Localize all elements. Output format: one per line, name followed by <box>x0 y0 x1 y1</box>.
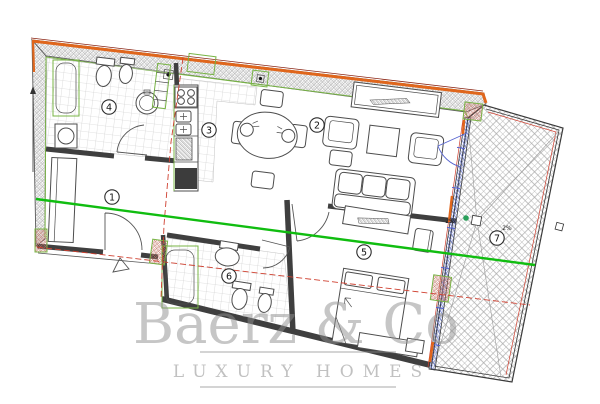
svg-text:2: 2 <box>314 120 320 131</box>
room-label-2: 2 <box>310 118 324 132</box>
washing-machine <box>55 124 77 148</box>
coffee-table <box>367 125 400 156</box>
room-label-6: 6 <box>222 269 236 283</box>
drain-marker <box>471 215 481 225</box>
slope-label: 2% <box>502 225 512 232</box>
room-label-4: 4 <box>102 100 116 114</box>
svg-text:1: 1 <box>109 192 115 203</box>
dishwasher <box>176 138 192 160</box>
svg-text:3: 3 <box>206 125 212 136</box>
watermark-brand: Baerz & Co <box>133 292 459 357</box>
room-label-5: 5 <box>357 245 371 259</box>
dining-chair <box>260 89 284 108</box>
room-label-3: 3 <box>202 123 216 137</box>
living-room <box>315 79 450 221</box>
fridge <box>175 168 197 189</box>
room-label-1: 1 <box>105 190 119 204</box>
floor-plan: 1 2 3 4 5 6 7 2% 2% Baerz & Co <box>0 0 600 404</box>
edge-marker <box>555 222 564 231</box>
armchair <box>322 116 359 150</box>
slope-label: 2% <box>445 218 455 225</box>
room-label-7: 7 <box>490 231 504 245</box>
svg-text:5: 5 <box>361 247 367 258</box>
ottoman <box>329 150 353 168</box>
armchair <box>408 132 444 166</box>
floor-plan-page: 1 2 3 4 5 6 7 2% 2% Baerz & Co <box>0 0 600 404</box>
svg-text:4: 4 <box>106 102 112 113</box>
entrance-door-arc <box>105 213 142 250</box>
kitchen <box>174 85 198 191</box>
watermark-tagline: LUXURY HOMES <box>173 362 431 382</box>
drain-dot <box>463 215 469 221</box>
watermark: Baerz & Co LUXURY HOMES <box>133 292 459 387</box>
dining-chair <box>251 171 275 190</box>
svg-text:6: 6 <box>226 271 232 282</box>
svg-text:7: 7 <box>494 233 500 244</box>
